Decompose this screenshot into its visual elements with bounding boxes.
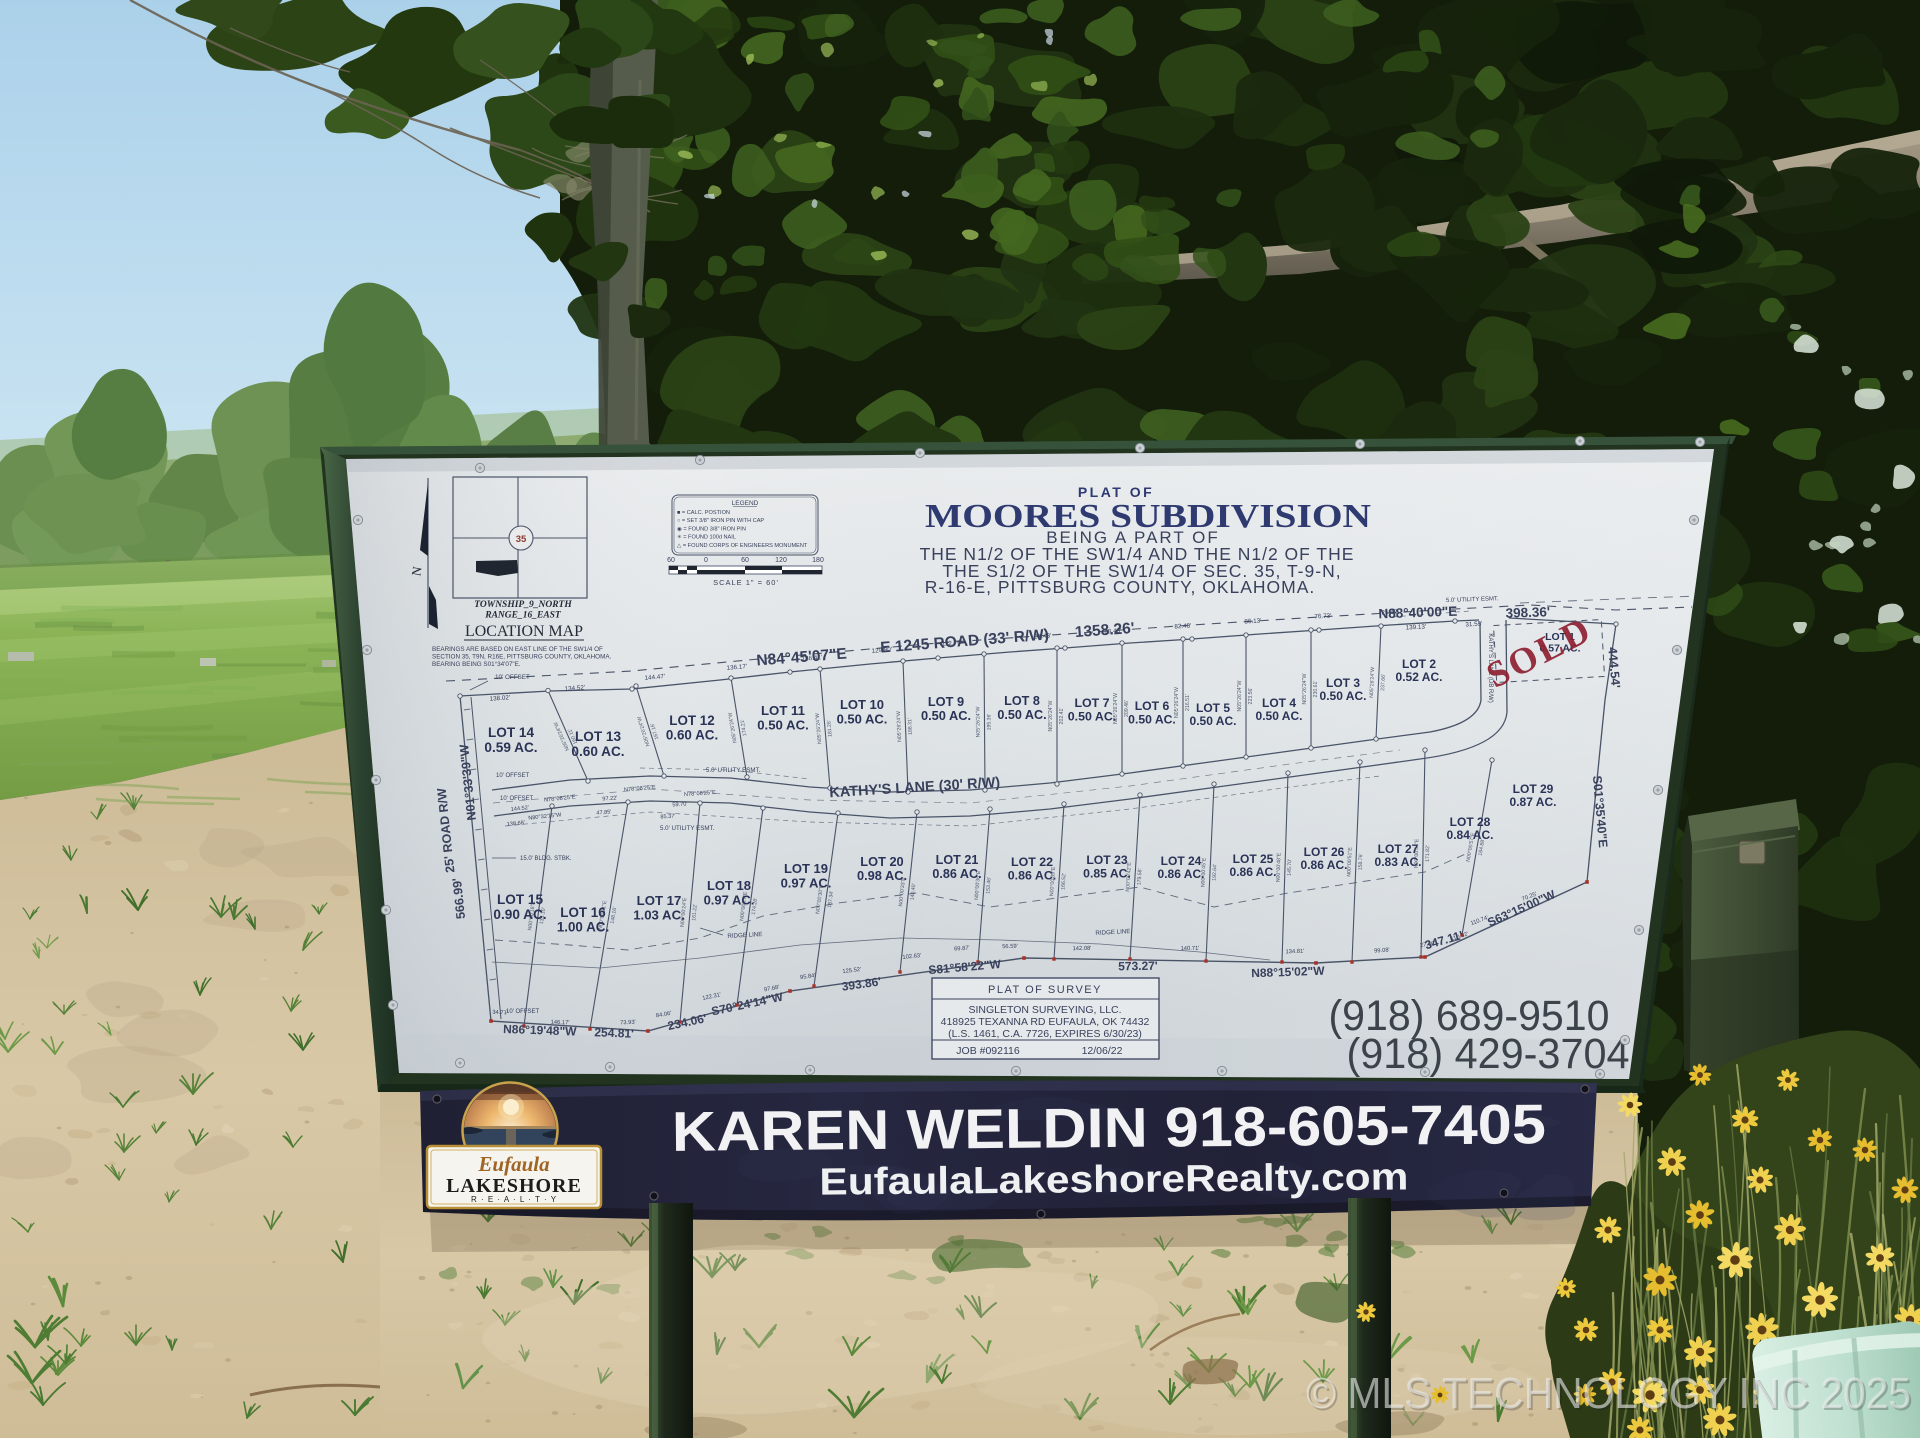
svg-text:73.93': 73.93' <box>620 1020 636 1027</box>
svg-text:0.50 AC.: 0.50 AC. <box>1068 710 1116 724</box>
svg-text:0.98 AC.: 0.98 AC. <box>857 868 907 883</box>
svg-text:N05°26'24"W: N05°26'24"W <box>975 706 981 737</box>
svg-text:171.82': 171.82' <box>1425 845 1431 862</box>
svg-text:0.60 AC.: 0.60 AC. <box>571 744 624 759</box>
svg-text:N05°26'24"W: N05°26'24"W <box>896 711 903 742</box>
svg-text:0.86 AC.: 0.86 AC. <box>1008 869 1056 883</box>
svg-text:195.36': 195.36' <box>986 714 992 731</box>
svg-text:LAKESHORE: LAKESHORE <box>446 1175 582 1197</box>
svg-text:60: 60 <box>741 557 749 564</box>
svg-text:138.02': 138.02' <box>489 694 510 702</box>
svg-text:0.59 AC.: 0.59 AC. <box>484 740 537 755</box>
svg-text:© MLS TECHNOLOGY INC 2025: © MLS TECHNOLOGY INC 2025 <box>1306 1369 1911 1418</box>
svg-text:202.41': 202.41' <box>1059 708 1065 725</box>
svg-text:158.76': 158.76' <box>1358 853 1365 870</box>
svg-text:142.08': 142.08' <box>1073 946 1092 952</box>
svg-text:76.73': 76.73' <box>1314 613 1331 621</box>
svg-text:0.86 AC.: 0.86 AC. <box>1301 858 1348 872</box>
svg-text:R · E · A · L · T · Y: R · E · A · L · T · Y <box>471 1195 557 1204</box>
svg-text:35: 35 <box>516 534 527 545</box>
svg-text:R-16-E, PITTSBURG COUNTY, OKLA: R-16-E, PITTSBURG COUNTY, OKLAHOMA. <box>925 577 1316 597</box>
svg-text:0.87 AC.: 0.87 AC. <box>1510 795 1557 809</box>
svg-text:LOT 25: LOT 25 <box>1233 852 1274 866</box>
svg-text:25.42': 25.42' <box>1381 609 1398 617</box>
svg-text:0.50 AC.: 0.50 AC. <box>1256 709 1303 723</box>
svg-text:0.86 AC.: 0.86 AC. <box>1230 865 1277 879</box>
svg-text:N05°26'24"W: N05°26'24"W <box>1237 680 1243 711</box>
svg-text:BEARING BEING S01°34'07"E.: BEARING BEING S01°34'07"E. <box>432 660 521 668</box>
svg-text:LOT 28: LOT 28 <box>1450 815 1491 829</box>
svg-text:PLAT OF SURVEY: PLAT OF SURVEY <box>988 984 1102 996</box>
svg-text:0: 0 <box>704 557 708 564</box>
svg-text:LOT 22: LOT 22 <box>1011 855 1053 869</box>
svg-text:LOT 3: LOT 3 <box>1326 676 1360 690</box>
svg-text:○ = SET 3/8" IRON PIN WITH CA: ○ = SET 3/8" IRON PIN WITH CAP <box>677 518 764 524</box>
svg-text:RANGE_16_EAST: RANGE_16_EAST <box>484 611 562 621</box>
svg-text:LOCATION MAP: LOCATION MAP <box>465 623 583 640</box>
svg-text:85.37': 85.37' <box>660 813 675 820</box>
svg-text:LOT 11: LOT 11 <box>761 703 805 718</box>
svg-text:99.08': 99.08' <box>1374 947 1390 954</box>
svg-text:418925 TEXANNA RD EUFAULA,: 418925 TEXANNA RD EUFAULA, OK 74432 <box>941 1016 1150 1028</box>
svg-text:LOT 23: LOT 23 <box>1086 853 1128 867</box>
svg-text:N05°26'24"W: N05°26'24"W <box>1174 687 1180 718</box>
svg-text:N05°26'24"W: N05°26'24"W <box>1302 673 1308 704</box>
svg-text:120: 120 <box>775 557 787 564</box>
svg-text:97.43': 97.43' <box>1034 632 1051 640</box>
svg-text:86.13': 86.13' <box>1244 618 1261 626</box>
svg-text:Eufaula: Eufaula <box>477 1152 549 1176</box>
svg-text:0.52 AC.: 0.52 AC. <box>1396 670 1443 684</box>
svg-text:1.03 AC.: 1.03 AC. <box>633 908 685 923</box>
svg-text:0.85 AC.: 0.85 AC. <box>1083 866 1131 880</box>
svg-text:LOT 4: LOT 4 <box>1262 696 1296 710</box>
svg-text:LOT 2: LOT 2 <box>1402 657 1436 671</box>
svg-text:(L.S. 1461, C.A. 7726, EXP: (L.S. 1461, C.A. 7726, EXPIRES 6/30/23) <box>948 1028 1142 1040</box>
svg-text:LOT 20: LOT 20 <box>860 854 903 869</box>
svg-text:0.86 AC.: 0.86 AC. <box>1158 867 1205 881</box>
svg-text:EufaulaLakeshoreRealty.com: EufaulaLakeshoreRealty.com <box>819 1156 1408 1203</box>
svg-text:0.50 AC.: 0.50 AC. <box>757 718 809 733</box>
svg-text:KAREN WELDIN 918-605-7405: KAREN WELDIN 918-605-7405 <box>672 1092 1547 1163</box>
svg-text:0.50 AC.: 0.50 AC. <box>1190 714 1237 728</box>
svg-text:209.46': 209.46' <box>1124 700 1130 717</box>
svg-text:LOT 24: LOT 24 <box>1161 854 1202 868</box>
svg-text:SINGLETON SURVEYING, LLC.: SINGLETON SURVEYING, LLC. <box>968 1004 1121 1016</box>
svg-text:56.59': 56.59' <box>1002 944 1018 951</box>
svg-text:60: 60 <box>667 557 675 564</box>
svg-text:188.31': 188.31' <box>907 718 914 735</box>
svg-text:LEGEND: LEGEND <box>732 500 759 507</box>
svg-text:10' OFFSET: 10' OFFSET <box>500 796 533 802</box>
svg-text:N05°26'24"W: N05°26'24"W <box>1113 693 1119 724</box>
svg-text:230.61': 230.61' <box>1313 681 1319 698</box>
svg-text:59.70': 59.70' <box>672 801 687 808</box>
svg-text:139.13': 139.13' <box>1406 623 1427 631</box>
svg-text:LOT 17: LOT 17 <box>637 893 682 908</box>
svg-text:69.87': 69.87' <box>954 945 970 952</box>
svg-text:0.50 AC.: 0.50 AC. <box>921 708 971 723</box>
svg-text:134.52': 134.52' <box>564 684 585 692</box>
svg-text:■ = CALC. POSTION: ■ = CALC. POSTION <box>677 510 730 516</box>
svg-text:398.36': 398.36' <box>1505 604 1550 621</box>
svg-text:237.66': 237.66' <box>1380 674 1387 691</box>
svg-text:SCALE 1" = 60': SCALE 1" = 60' <box>713 578 779 587</box>
svg-text:573.27': 573.27' <box>1118 959 1158 974</box>
svg-text:LOT 18: LOT 18 <box>707 878 751 893</box>
svg-text:216.51': 216.51' <box>1185 694 1191 711</box>
svg-text:LOT 13: LOT 13 <box>575 729 622 744</box>
svg-text:BEARINGS ARE BASED ON EAST LIN: BEARINGS ARE BASED ON EAST LINE OF THE S… <box>432 646 603 653</box>
svg-text:0.50 AC.: 0.50 AC. <box>837 711 888 726</box>
svg-text:N00°00'48"E: N00°00'48"E <box>1276 852 1283 882</box>
svg-text:0.60 AC.: 0.60 AC. <box>666 728 718 743</box>
svg-text:166.52': 166.52' <box>1060 873 1067 890</box>
svg-text:0.50 AC.: 0.50 AC. <box>997 708 1046 722</box>
svg-text:LOT 21: LOT 21 <box>936 853 979 867</box>
svg-text:LOT 9: LOT 9 <box>928 694 964 709</box>
svg-text:LOT 8: LOT 8 <box>1004 694 1040 708</box>
svg-text:223.56': 223.56' <box>1248 688 1254 705</box>
svg-text:LOT 7: LOT 7 <box>1074 696 1109 710</box>
svg-text:112.75': 112.75' <box>942 639 962 647</box>
svg-text:LOT 6: LOT 6 <box>1135 699 1170 713</box>
svg-text:LOT 27: LOT 27 <box>1378 842 1419 856</box>
svg-text:SECTION 35, T9N, R16E, PITTSBU: SECTION 35, T9N, R16E, PITTSBURG COUNTY,… <box>432 654 612 661</box>
svg-text:10' OFFSET: 10' OFFSET <box>496 773 529 779</box>
svg-text:N05°26'24"W: N05°26'24"W <box>1048 700 1054 731</box>
svg-text:JOB #092116: JOB #092116 <box>956 1045 1020 1057</box>
svg-text:140.71': 140.71' <box>1181 946 1200 952</box>
svg-text:LOT 14: LOT 14 <box>488 725 535 740</box>
svg-text:82.40': 82.40' <box>1174 623 1191 631</box>
svg-text:254.81': 254.81' <box>594 1025 634 1040</box>
svg-text:10' OFFSET: 10' OFFSET <box>495 674 530 681</box>
svg-text:LOT 15: LOT 15 <box>497 892 544 907</box>
svg-text:N00°00'54"E: N00°00'54"E <box>1414 838 1421 868</box>
svg-text:179.58': 179.58' <box>1136 868 1143 885</box>
svg-text:180: 180 <box>812 557 824 564</box>
svg-text:LOT 12: LOT 12 <box>669 713 714 728</box>
svg-text:LOT 26: LOT 26 <box>1304 845 1345 859</box>
svg-text:LOT 10: LOT 10 <box>840 697 884 712</box>
svg-text:83.43': 83.43' <box>1104 627 1121 635</box>
svg-text:34.71': 34.71' <box>492 1010 508 1017</box>
svg-text:134.81': 134.81' <box>1285 949 1304 956</box>
svg-text:15.0' BLDG. STBK.: 15.0' BLDG. STBK. <box>520 856 572 862</box>
svg-text:0.86 AC.: 0.86 AC. <box>932 867 981 881</box>
svg-text:LOT 19: LOT 19 <box>784 861 828 876</box>
svg-text:LOT 5: LOT 5 <box>1196 701 1230 715</box>
svg-text:◉ = FOUND 3/8" IRON PIN: ◉ = FOUND 3/8" IRON PIN <box>677 526 746 532</box>
svg-text:0.50 AC.: 0.50 AC. <box>1128 712 1176 726</box>
svg-text:145.70': 145.70' <box>1287 859 1294 876</box>
svg-text:10' OFFSET: 10' OFFSET <box>506 1009 539 1015</box>
svg-text:5.0' UTILITY ESMT.: 5.0' UTILITY ESMT. <box>706 767 761 774</box>
svg-text:31.55': 31.55' <box>1465 621 1482 629</box>
svg-text:N88°15'02"W: N88°15'02"W <box>1251 964 1325 981</box>
svg-text:0.50 AC.: 0.50 AC. <box>1320 689 1367 703</box>
svg-text:12/06/22: 12/06/22 <box>1082 1045 1123 1057</box>
svg-text:✳ = FOUND 100d NAIL: ✳ = FOUND 100d NAIL <box>677 534 736 541</box>
svg-text:△ = FOUND CORPS OF ENGINEERS: △ = FOUND CORPS OF ENGINEERS MONUMENT <box>677 543 808 549</box>
svg-text:192.64': 192.64' <box>1212 864 1219 881</box>
svg-text:(918) 429-3704: (918) 429-3704 <box>1347 1031 1630 1078</box>
svg-text:TOWNSHIP_9_NORTH: TOWNSHIP_9_NORTH <box>474 600 572 610</box>
svg-text:N00°00'51"E: N00°00'51"E <box>1346 847 1353 877</box>
svg-text:LOT 29: LOT 29 <box>1513 782 1554 796</box>
svg-text:146.17': 146.17' <box>551 1020 570 1027</box>
svg-text:5.0' UTILITY ESMT.: 5.0' UTILITY ESMT. <box>660 825 715 832</box>
